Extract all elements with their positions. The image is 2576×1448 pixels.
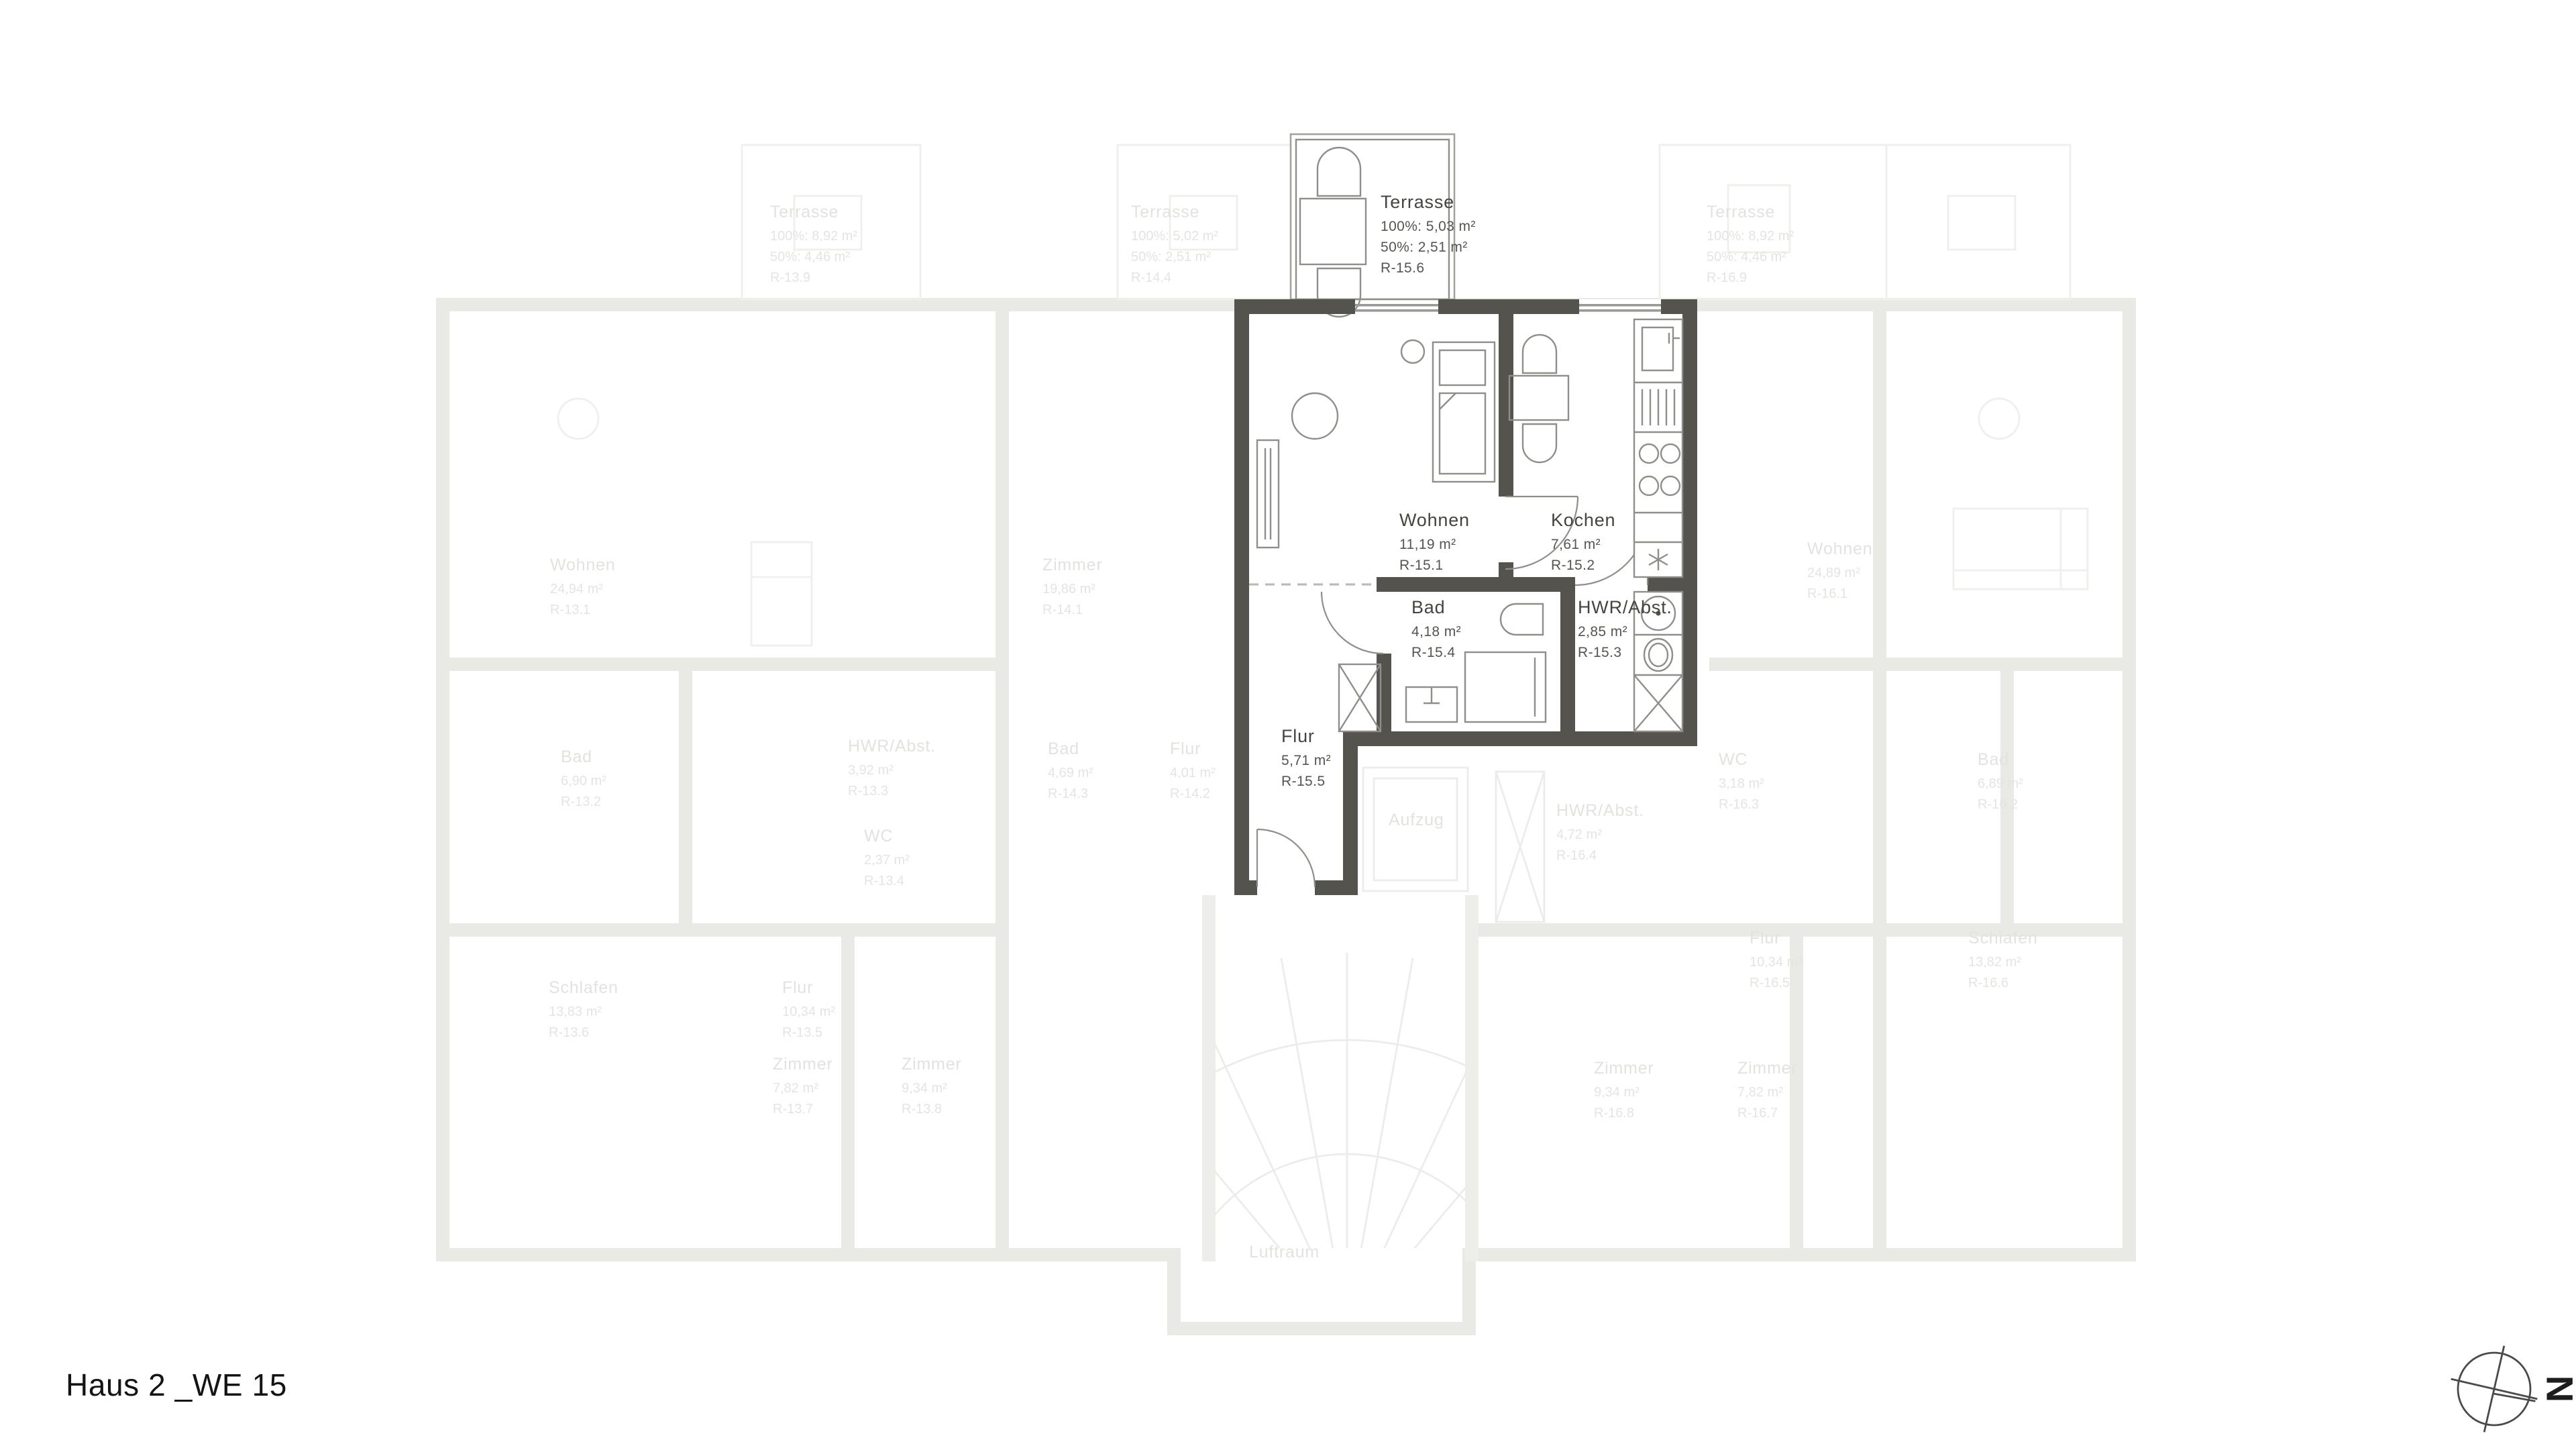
room-label-bad-14-3: Bad4,69 m²R-14.3: [1048, 739, 1093, 801]
room-label-flur-13-5: Flur10,34 m²R-13.5: [782, 978, 835, 1040]
room-label-flur-14-2: Flur4,01 m²R-14.2: [1170, 739, 1216, 801]
room-label-zimmer-13-7: Zimmer7,82 m²R-13.7: [773, 1055, 833, 1117]
room-label-schlafen-16-6: Schlafen13,82 m²R-16.6: [1968, 929, 2038, 990]
room-label-schlafen-13-6: Schlafen13,83 m²R-13.6: [549, 978, 619, 1040]
kitchen-window: [1579, 304, 1661, 307]
room-label-terrasse-mid: Terrasse100%: 5,02 m²50%: 2,51 m²R-14.4: [1131, 203, 1218, 285]
room-label-hwr-13-3: HWR/Abst.3,92 m²R-13.3: [848, 737, 936, 798]
room-label-zimmer-16-8: Zimmer9,34 m²R-16.8: [1594, 1059, 1654, 1121]
room-label-luftraum: Luftraum: [1249, 1243, 1320, 1261]
room-label-terrasse-right: Terrasse100%: 8,92 m²50%: 4,46 m²R-16.9: [1707, 203, 1794, 285]
room-label-bad-13-2: Bad6,90 m²R-13.2: [561, 747, 606, 809]
room-label-terrasse-left: Terrasse100%: 8,92 m²50%: 4,46 m²R-13.9: [770, 203, 857, 285]
room-label-wohnen-16-1: Wohnen24,89 m²R-16.1: [1807, 539, 1872, 601]
room-label-wc-13-4: WC2,37 m²R-13.4: [864, 827, 910, 888]
room-label-wc-16-3: WC3,18 m²R-16.3: [1719, 750, 1764, 812]
room-label-zimmer-16-7: Zimmer7,82 m²R-16.7: [1737, 1059, 1798, 1121]
terrace-door-window: [1355, 304, 1438, 307]
elevator-shaft: [1363, 768, 1544, 922]
kitchen-counter: [1634, 319, 1682, 577]
floorplan-canvas: Terrasse100%: 8,92 m²50%: 4,46 m²R-13.9T…: [0, 0, 2576, 1448]
stairwell: [994, 953, 1700, 1448]
room-label-hwr-16-4: HWR/Abst.4,72 m²R-16.4: [1556, 801, 1644, 863]
north-label: N: [2539, 1376, 2576, 1402]
room-label-zimmer-13-8: Zimmer9,34 m²R-13.8: [902, 1055, 962, 1117]
plan-title: Haus 2 _WE 15: [66, 1367, 287, 1402]
room-label-wohnen-13-1: Wohnen24,94 m²R-13.1: [550, 556, 615, 617]
room-label-aufzug: Aufzug: [1389, 811, 1444, 829]
compass-icon: N: [2441, 1336, 2576, 1442]
room-label-zimmer-14-1: Zimmer19,86 m²R-14.1: [1042, 556, 1103, 617]
room-label-bad-16-2: Bad6,89 m²R-16.2: [1978, 750, 2023, 812]
